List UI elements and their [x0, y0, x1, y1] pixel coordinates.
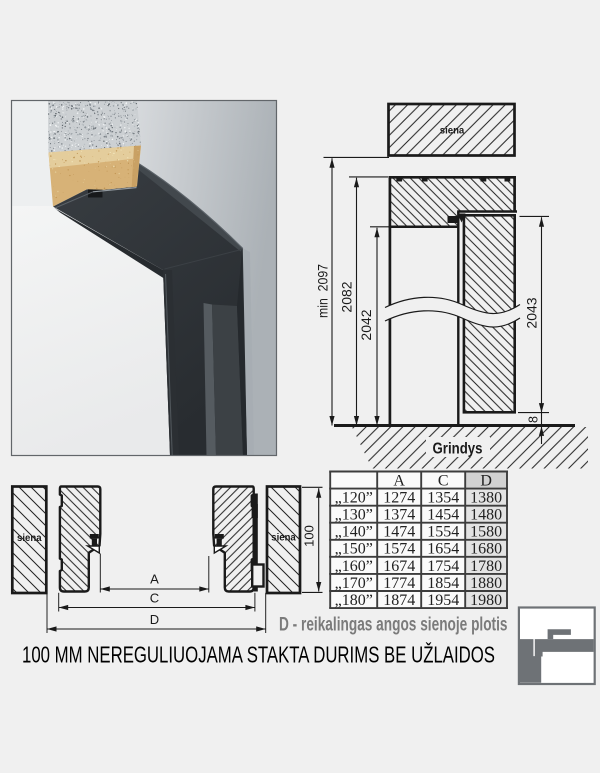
- svg-text:min 2097: min 2097: [315, 264, 331, 318]
- svg-text:D: D: [150, 612, 159, 627]
- svg-text:100: 100: [302, 525, 317, 547]
- svg-text:A: A: [150, 572, 159, 587]
- svg-text:C: C: [150, 591, 159, 606]
- svg-text:100 MM NEREGULIUOJAMA STAKTA D: 100 MM NEREGULIUOJAMA STAKTA DURIMS BE U…: [22, 642, 495, 668]
- svg-text:1574: 1574: [383, 541, 415, 558]
- svg-text:1680: 1680: [470, 541, 502, 558]
- svg-text:1454: 1454: [427, 507, 459, 524]
- svg-text:1980: 1980: [470, 592, 502, 609]
- svg-text:1354: 1354: [427, 489, 459, 506]
- svg-text:1780: 1780: [470, 558, 502, 575]
- svg-text:„170”: „170”: [335, 575, 373, 592]
- svg-text:2082: 2082: [339, 281, 355, 312]
- svg-text:1674: 1674: [383, 558, 415, 575]
- svg-text:„120”: „120”: [335, 489, 373, 506]
- svg-text:1380: 1380: [470, 489, 502, 506]
- svg-text:1374: 1374: [383, 507, 415, 524]
- svg-text:D - reikalingas angos sienoje: D - reikalingas angos sienoje plotis: [279, 615, 508, 636]
- svg-text:8: 8: [527, 416, 541, 423]
- svg-text:siena: siena: [440, 125, 465, 137]
- svg-text:1854: 1854: [427, 575, 459, 592]
- svg-text:„160”: „160”: [335, 558, 373, 575]
- svg-text:1654: 1654: [427, 541, 459, 558]
- svg-text:1774: 1774: [383, 575, 415, 592]
- svg-text:Grindys: Grindys: [433, 441, 483, 458]
- svg-text:1954: 1954: [427, 592, 459, 609]
- svg-text:1754: 1754: [427, 558, 459, 575]
- svg-text:„140”: „140”: [335, 524, 373, 541]
- svg-text:siena: siena: [17, 532, 42, 544]
- svg-text:1474: 1474: [383, 524, 415, 541]
- svg-text:1580: 1580: [470, 524, 502, 541]
- svg-text:„150”: „150”: [335, 541, 373, 558]
- svg-text:2042: 2042: [358, 309, 374, 340]
- svg-text:„130”: „130”: [335, 507, 373, 524]
- svg-text:C: C: [438, 472, 449, 489]
- svg-text:siena: siena: [271, 532, 296, 544]
- svg-text:D: D: [480, 472, 492, 489]
- svg-text:„180”: „180”: [335, 592, 373, 609]
- svg-text:A: A: [393, 472, 405, 489]
- svg-text:1274: 1274: [383, 489, 415, 506]
- svg-text:1874: 1874: [383, 592, 415, 609]
- svg-text:1554: 1554: [427, 524, 459, 541]
- svg-text:1480: 1480: [470, 507, 502, 524]
- svg-text:1880: 1880: [470, 575, 502, 592]
- svg-text:2043: 2043: [524, 297, 540, 328]
